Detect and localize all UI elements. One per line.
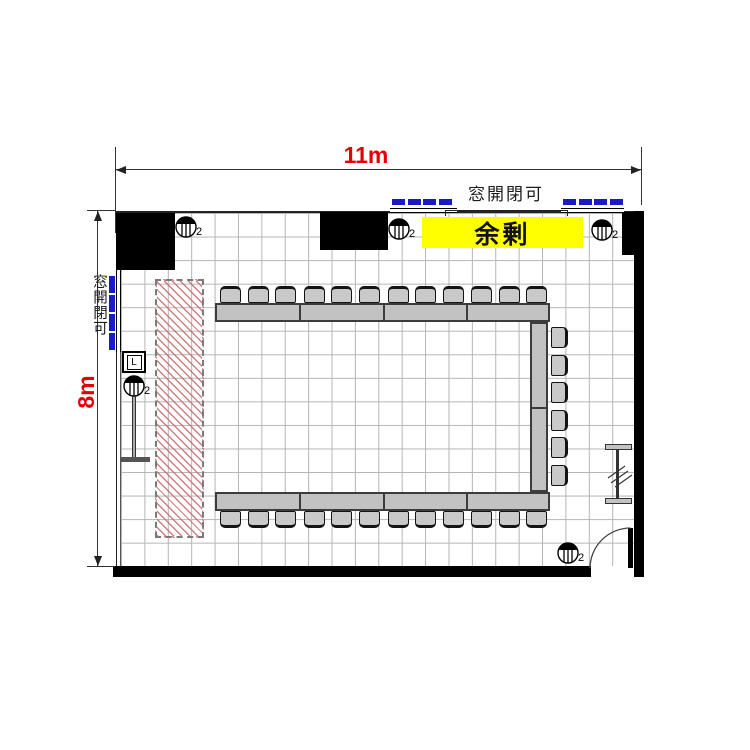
chair-bottom-row (443, 511, 464, 528)
chair-top-row (359, 286, 380, 303)
light-bottom-right-icon: 2 (556, 540, 588, 572)
chair-right-column (551, 355, 568, 376)
chair-bottom-row (248, 511, 269, 528)
chair-right-column (551, 410, 568, 431)
chair-top-row (388, 286, 409, 303)
chair-top-row (443, 286, 464, 303)
chair-right-column (551, 465, 568, 486)
chair-right-column (551, 327, 568, 348)
stand-foot (120, 457, 150, 462)
window-openable-line (445, 210, 568, 211)
top-dim-ext-left (115, 147, 116, 233)
width-dimension-label: 11m (336, 142, 396, 169)
window-marker-dash (439, 199, 452, 205)
rack-hatch-marks (604, 460, 636, 490)
chair-bottom-row (220, 511, 241, 528)
floor-plan: 余剰 22222 L 11m 8m 窓開閉可 窓開閉可 (0, 0, 750, 750)
chair-bottom-row (526, 511, 547, 528)
window-openable-tick-left (445, 210, 446, 216)
chair-right-column (551, 437, 568, 458)
left-dim-tick-bottom (87, 566, 115, 567)
window-marker-dash (594, 199, 607, 205)
chair-bottom-row (415, 511, 436, 528)
left-window-label: 窓開閉可 (89, 274, 110, 344)
top-dim-arrow-left (116, 166, 126, 174)
chair-bottom-row (471, 511, 492, 528)
stand-pole (132, 396, 136, 458)
svg-text:2: 2 (409, 228, 415, 240)
top-window-label: 窓開閉可 (468, 180, 558, 205)
light-top-left-icon: 2 (174, 214, 206, 246)
svg-text:2: 2 (612, 229, 618, 241)
chair-bottom-row (388, 511, 409, 528)
chair-bottom-row (275, 511, 296, 528)
svg-text:2: 2 (578, 552, 584, 564)
window-marker-dash (392, 199, 405, 205)
chair-bottom-row (499, 511, 520, 528)
table-divider (466, 492, 468, 511)
hatched-area (155, 279, 204, 538)
chair-top-row (304, 286, 325, 303)
top-dim-line (116, 169, 641, 170)
chair-top-row (471, 286, 492, 303)
left-dim-arrow-top (94, 211, 102, 221)
pillar-top-right (622, 212, 642, 255)
switch-box: L (122, 351, 146, 373)
top-dim-ext-right (641, 147, 642, 205)
top-dim-arrow-right (631, 166, 641, 174)
window-marker-dash (423, 199, 436, 205)
table-divider (299, 303, 301, 322)
window-marker-dash (579, 199, 592, 205)
chair-top-row (499, 286, 520, 303)
door-swing-arc (588, 526, 634, 570)
pillar-top-center (320, 212, 388, 250)
pillar-top-left (116, 213, 175, 270)
light-top-center-icon: 2 (387, 216, 419, 248)
window-marker-dash (563, 199, 576, 205)
window-openable-tick-right (567, 210, 568, 216)
surplus-label: 余剰 (474, 215, 530, 251)
window-left-band (116, 268, 121, 352)
wall-bottom (113, 566, 591, 577)
chair-bottom-row (304, 511, 325, 528)
svg-text:2: 2 (144, 385, 150, 397)
wall-right (634, 211, 644, 577)
table-divider (530, 407, 548, 409)
switch-box-label: L (127, 355, 142, 370)
svg-text:2: 2 (196, 226, 202, 238)
chair-top-row (275, 286, 296, 303)
light-top-right-icon: 2 (590, 217, 622, 249)
chair-top-row (248, 286, 269, 303)
chair-top-row (331, 286, 352, 303)
surplus-label-box: 余剰 (422, 217, 583, 248)
window-marker-dash (610, 199, 623, 205)
chair-right-column (551, 382, 568, 403)
chair-bottom-row (359, 511, 380, 528)
chair-top-row (220, 286, 241, 303)
table-divider (466, 303, 468, 322)
chair-top-row (526, 286, 547, 303)
table-divider (383, 303, 385, 322)
chair-top-row (415, 286, 436, 303)
table-divider (299, 492, 301, 511)
left-dim-arrow-bottom (94, 556, 102, 566)
height-dimension-label: 8m (73, 370, 99, 414)
chair-bottom-row (331, 511, 352, 528)
light-left-wall-icon: 2 (122, 373, 154, 405)
window-top-right-band (561, 208, 624, 213)
window-marker-dash (408, 199, 421, 205)
rack-bottom-bar (605, 498, 632, 504)
table-divider (383, 492, 385, 511)
